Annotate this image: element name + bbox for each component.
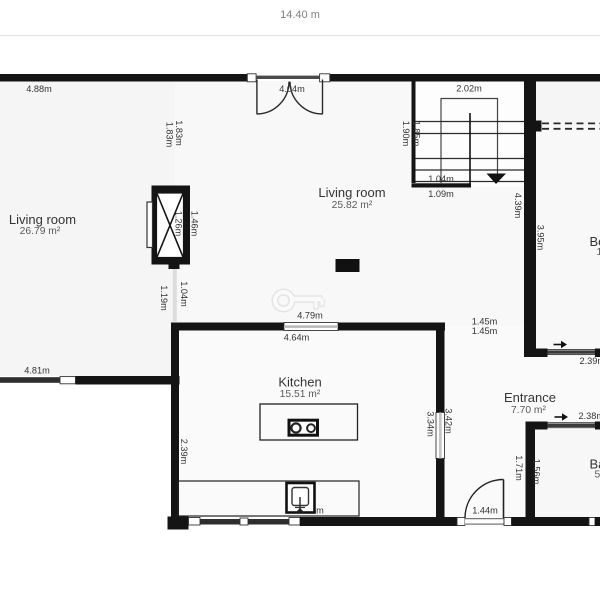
svg-text:1.71m: 1.71m (514, 455, 524, 481)
svg-text:1.44m: 1.44m (472, 506, 498, 516)
svg-text:15.51 m²: 15.51 m² (280, 389, 321, 400)
svg-text:4.81m: 4.81m (24, 366, 50, 376)
svg-text:7.70 m²: 7.70 m² (511, 405, 546, 416)
svg-text:Kitchen: Kitchen (278, 375, 321, 390)
svg-text:3.95m: 3.95m (536, 225, 546, 251)
svg-text:1.83m: 1.83m (165, 122, 175, 148)
svg-text:13.65 m²: 13.65 m² (597, 247, 600, 258)
svg-text:Living room: Living room (9, 212, 76, 227)
svg-text:2.39m: 2.39m (580, 356, 600, 366)
svg-text:1.90m: 1.90m (401, 121, 411, 147)
svg-text:1.45m: 1.45m (472, 317, 498, 327)
svg-text:1.19m: 1.19m (159, 285, 169, 311)
svg-text:2.02m: 2.02m (456, 84, 482, 94)
svg-text:1.56m: 1.56m (532, 459, 542, 485)
svg-text:14.40 m: 14.40 m (280, 9, 320, 21)
svg-text:1.45m: 1.45m (472, 326, 498, 336)
svg-text:5.95 m²: 5.95 m² (595, 470, 600, 481)
svg-text:Entrance: Entrance (504, 390, 556, 405)
svg-text:1.46m: 1.46m (190, 211, 200, 237)
svg-text:4.88m: 4.88m (26, 84, 52, 94)
svg-text:1.09m: 1.09m (428, 189, 454, 199)
svg-text:4.04m: 4.04m (279, 84, 305, 94)
svg-text:1.83m: 1.83m (174, 120, 184, 146)
svg-text:25.82 m²: 25.82 m² (332, 200, 373, 211)
svg-text:Living room: Living room (318, 185, 385, 200)
svg-text:3.34m: 3.34m (426, 411, 436, 437)
svg-text:2.39m: 2.39m (179, 439, 189, 465)
svg-text:4.39m: 4.39m (513, 193, 523, 219)
svg-text:4.64m: 4.64m (284, 333, 310, 343)
svg-text:3.42m: 3.42m (444, 408, 454, 434)
svg-text:4.79m: 4.79m (297, 311, 323, 321)
svg-text:26.79 m²: 26.79 m² (20, 226, 61, 237)
svg-text:1.85m: 1.85m (412, 121, 422, 147)
svg-text:1.04m: 1.04m (179, 281, 189, 307)
svg-text:2.38m: 2.38m (579, 411, 600, 421)
svg-text:1.04m: 1.04m (428, 174, 454, 184)
svg-text:1.26m: 1.26m (174, 211, 184, 237)
